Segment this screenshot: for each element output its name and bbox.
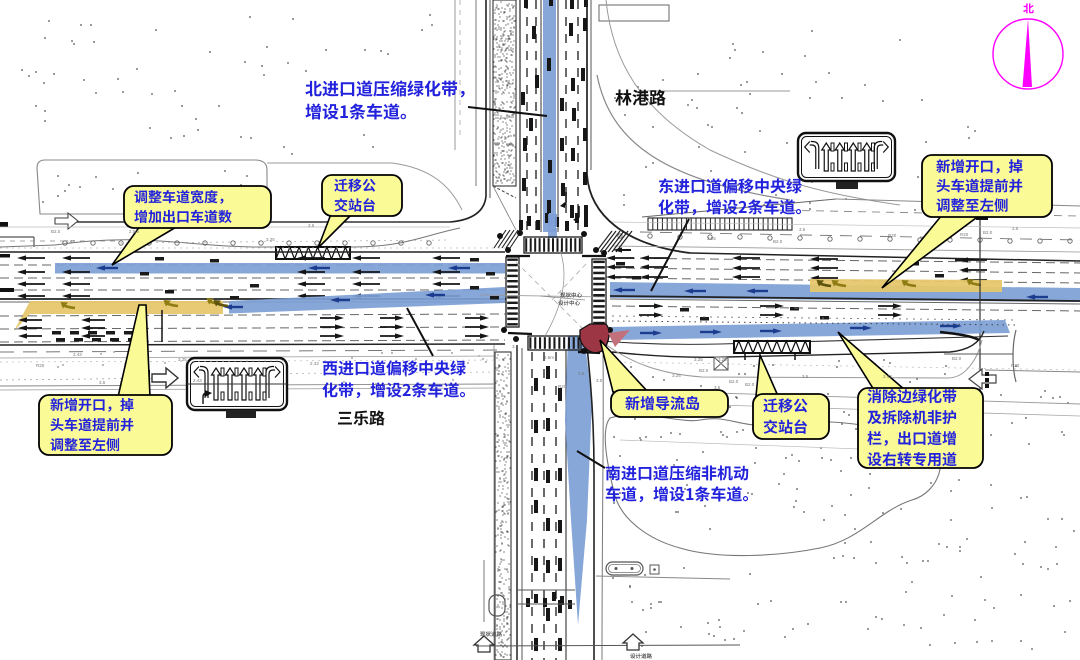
svg-text:B2.0: B2.0 [729,379,739,384]
svg-text:3.25: 3.25 [718,357,727,362]
svg-text:R20: R20 [36,363,45,368]
svg-text:R20: R20 [888,233,897,238]
svg-text:3.5: 3.5 [99,380,106,385]
svg-text:3.25: 3.25 [694,357,703,362]
svg-text:3.5: 3.5 [308,223,315,228]
svg-text:R20: R20 [960,232,969,237]
svg-text:3.25: 3.25 [178,357,187,362]
svg-text:2.43: 2.43 [310,361,319,366]
svg-text:3.5: 3.5 [714,385,721,390]
svg-text:2.5m: 2.5m [129,229,139,234]
svg-text:3.5: 3.5 [1012,226,1019,231]
svg-text:2.43: 2.43 [193,378,202,383]
svg-text:R20: R20 [1011,363,1020,368]
svg-text:B2.0: B2.0 [983,230,993,235]
svg-text:2.43: 2.43 [883,374,892,379]
svg-text:B2.0: B2.0 [699,368,709,373]
svg-text:3.5: 3.5 [799,227,806,232]
svg-text:B2.0: B2.0 [773,239,783,244]
svg-text:R20: R20 [558,384,567,389]
svg-text:3.25: 3.25 [266,237,275,242]
svg-text:B2.0: B2.0 [952,356,962,361]
svg-text:3.25: 3.25 [672,373,681,378]
svg-text:B2.0: B2.0 [51,229,61,234]
svg-text:B2.0: B2.0 [745,382,755,387]
svg-text:3.5: 3.5 [512,344,519,349]
svg-text:3.5: 3.5 [578,371,585,376]
svg-text:3.25: 3.25 [707,236,716,241]
svg-text:2.43: 2.43 [66,239,75,244]
svg-text:2.5m: 2.5m [544,355,554,360]
svg-text:3.5: 3.5 [802,374,809,379]
svg-text:3.5: 3.5 [596,378,603,383]
svg-text:2.43: 2.43 [73,352,82,357]
